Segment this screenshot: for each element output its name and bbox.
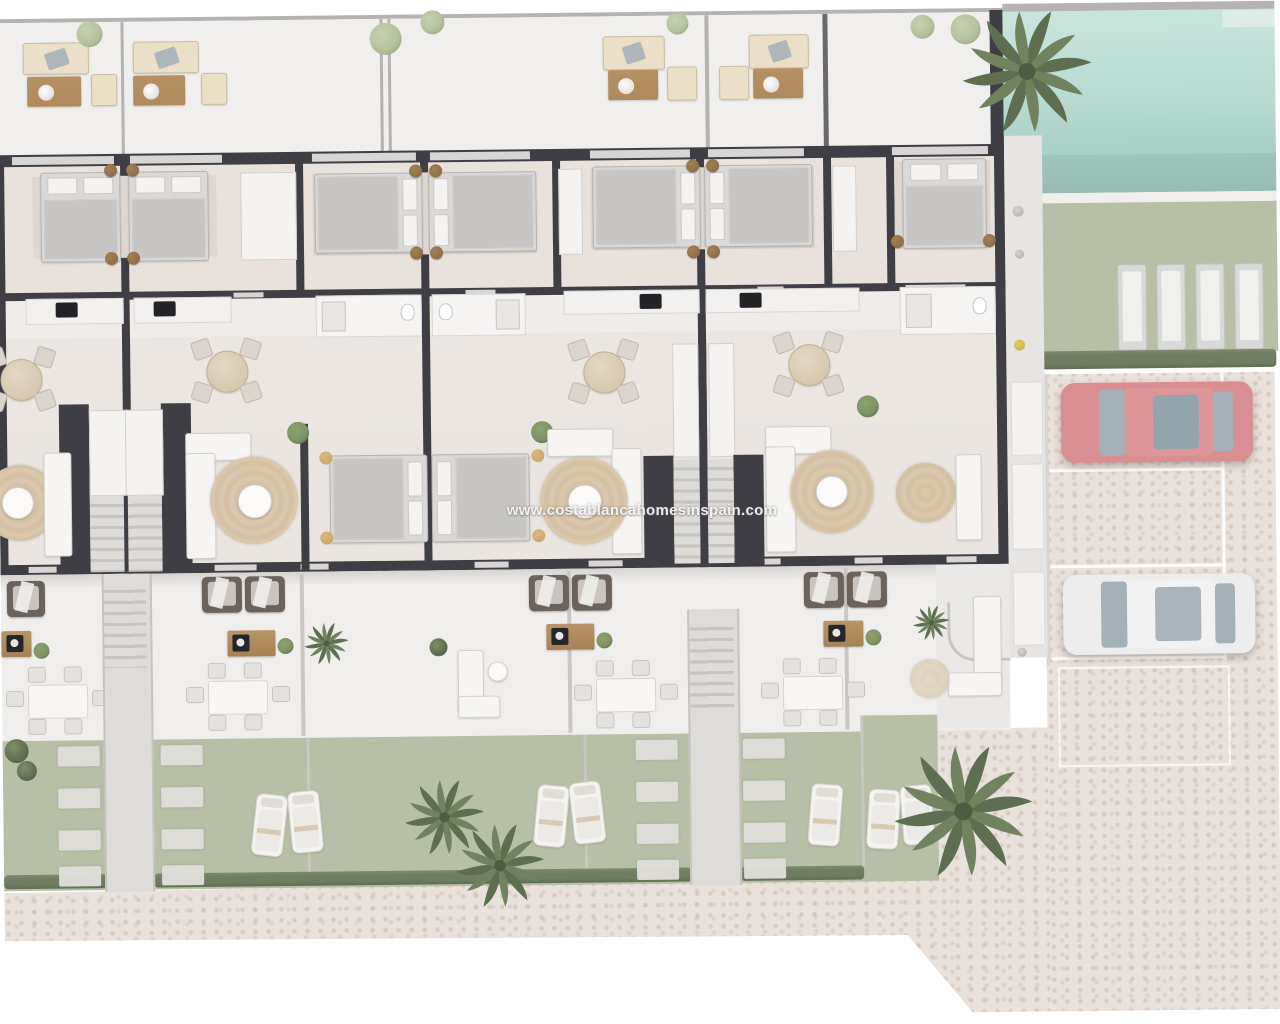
sun-lounger <box>250 793 289 858</box>
round-pouf <box>706 159 719 172</box>
car-windshield <box>1101 581 1128 647</box>
bush <box>420 10 444 34</box>
stepping-stone <box>59 830 101 850</box>
outdoor-sofa <box>603 36 665 71</box>
window <box>430 151 530 160</box>
outdoor-dining-set <box>759 655 868 726</box>
living-wall <box>300 424 310 572</box>
plant-pot <box>1015 250 1024 259</box>
window <box>130 155 222 164</box>
sofa <box>547 428 613 457</box>
outdoor-sofa <box>23 42 89 75</box>
double-bed <box>902 158 987 249</box>
path-steps <box>104 582 147 668</box>
terrace-armchair <box>847 571 887 607</box>
bathroom <box>316 294 422 337</box>
hall-closet <box>89 410 128 496</box>
potted-plant <box>857 395 879 417</box>
terrace-door <box>589 560 623 566</box>
shower <box>496 299 520 329</box>
shrub <box>17 761 37 781</box>
outdoor-armchair <box>667 66 697 100</box>
kitchen-counter <box>134 297 232 324</box>
terrace-armchair <box>804 572 844 608</box>
outdoor-rug <box>910 658 950 698</box>
hall-closet <box>125 409 164 495</box>
outdoor-armchair <box>91 74 117 106</box>
round-pouf <box>429 164 442 177</box>
cooktop <box>740 293 762 308</box>
bush <box>76 21 102 47</box>
pool-deep-shading <box>1004 153 1276 194</box>
double-bed <box>431 453 530 542</box>
sun-lounger <box>807 783 844 847</box>
round-pouf <box>983 234 996 247</box>
white-car <box>1063 573 1256 655</box>
round-pouf <box>409 164 422 177</box>
bbq-console <box>546 624 594 651</box>
dining-set <box>0 343 57 416</box>
cooktop <box>640 294 662 309</box>
potted-plant <box>287 422 309 444</box>
round-pouf <box>319 451 332 464</box>
sunbed <box>1156 264 1186 350</box>
double-bed <box>704 164 813 247</box>
palm-tree <box>888 736 1040 888</box>
stair-core <box>59 403 193 574</box>
stepping-stone <box>59 866 101 886</box>
outdoor-armchair <box>201 73 227 105</box>
round-pouf <box>686 159 699 172</box>
toilet <box>439 303 453 320</box>
fan-palm-plant <box>302 619 351 668</box>
palm-tree <box>451 817 548 914</box>
car-sunroof <box>1155 587 1202 642</box>
potted-plant <box>33 643 49 659</box>
stepping-stone <box>161 787 203 807</box>
kitchen-counter <box>705 287 859 313</box>
entry-mat <box>1011 463 1044 549</box>
stepping-stone <box>636 782 678 802</box>
dining-set <box>772 328 845 401</box>
double-bed <box>314 172 423 253</box>
round-pouf <box>105 252 118 265</box>
bbq-console <box>1 631 31 657</box>
bbq-console <box>823 620 863 646</box>
palm-tree <box>956 1 1098 143</box>
outdoor-dining-set <box>4 664 113 735</box>
stepping-stone <box>637 860 679 880</box>
stepping-stone <box>58 746 100 766</box>
outdoor-coffee-table <box>27 76 81 107</box>
garden-lawn <box>860 715 937 736</box>
bathroom <box>432 293 526 336</box>
terrace-armchair <box>202 577 242 613</box>
window <box>708 148 804 157</box>
stepping-stone <box>161 745 203 765</box>
door-opening <box>233 292 263 297</box>
terrace-armchair <box>245 576 285 612</box>
hall-closet <box>672 343 699 457</box>
stepping-stone <box>162 829 204 849</box>
outdoor-coffee-table <box>608 70 658 101</box>
hall-closet <box>708 343 735 457</box>
terrace-armchair <box>572 574 612 610</box>
double-bed <box>329 454 428 543</box>
stepping-stone <box>162 865 204 885</box>
outdoor-coffee-table <box>753 68 803 99</box>
bbq-console <box>227 630 275 657</box>
round-pouf <box>410 246 423 259</box>
stepping-stone <box>58 788 100 808</box>
sofa <box>955 454 982 540</box>
stair-core <box>642 339 765 568</box>
potted-plant <box>865 629 881 645</box>
terrace-armchair <box>529 575 569 611</box>
wardrobe <box>558 169 583 255</box>
outdoor-dining-set <box>184 660 293 731</box>
coffee-table <box>2 487 34 519</box>
round-pouf <box>891 235 904 248</box>
stepping-stone <box>637 824 679 844</box>
bathroom <box>899 286 996 335</box>
potted-plant <box>596 632 612 648</box>
terrace-door <box>29 567 57 573</box>
terrace-door <box>947 556 977 562</box>
bush <box>369 23 401 55</box>
car-rear-window <box>1213 391 1234 451</box>
round-pouf <box>320 531 333 544</box>
parking-hedge <box>1024 349 1276 370</box>
round-rug <box>895 462 956 523</box>
sunbed <box>1234 263 1264 349</box>
wardrobe <box>832 166 857 252</box>
window <box>892 146 988 155</box>
terrace-door <box>855 557 883 563</box>
cooktop <box>154 301 176 316</box>
sunbed <box>1117 264 1147 350</box>
round-pouf <box>532 529 545 542</box>
stepping-stone <box>636 740 678 760</box>
stepping-stone <box>743 738 785 758</box>
stepping-stone <box>743 780 785 800</box>
outdoor-sofa <box>749 34 809 69</box>
round-pouf <box>687 245 700 258</box>
shower <box>906 294 932 328</box>
yellow-pot <box>1014 340 1025 351</box>
outdoor-sofa <box>133 41 199 74</box>
shower <box>322 301 346 331</box>
double-bed <box>40 172 121 263</box>
round-pouf <box>127 252 140 265</box>
double-bed <box>428 171 537 252</box>
plant-pot <box>1018 648 1027 657</box>
bush <box>666 12 688 34</box>
shrub <box>429 638 447 656</box>
coffee-table <box>816 476 848 508</box>
dining-set <box>190 334 263 407</box>
double-bed <box>128 171 209 262</box>
sun-lounger <box>287 789 325 854</box>
side-table <box>488 662 508 682</box>
fan-palm-plant <box>911 602 951 642</box>
round-pouf <box>531 449 544 462</box>
entry-mat <box>1013 571 1046 645</box>
kitchen-counter <box>563 289 699 315</box>
potted-plant <box>277 638 293 654</box>
double-bed <box>592 165 701 248</box>
stepping-stone <box>744 858 786 878</box>
corner-outdoor-sofa <box>458 696 500 718</box>
window <box>12 156 114 165</box>
sunbed <box>1195 263 1225 349</box>
cooktop <box>56 302 78 317</box>
sofa <box>43 452 72 556</box>
watermark-text: www.costablancahomesinspain.com <box>492 502 792 519</box>
terrace-door <box>215 564 257 570</box>
corner-outdoor-sofa <box>948 672 1002 697</box>
stepping-stone <box>744 822 786 842</box>
round-pouf <box>430 246 443 259</box>
car-rear-window <box>1215 583 1236 643</box>
wardrobe <box>240 172 297 261</box>
coffee-table <box>238 484 272 518</box>
round-pouf <box>126 164 139 177</box>
path-steps <box>689 619 734 711</box>
terrace-door <box>475 561 509 567</box>
round-pouf <box>707 245 720 258</box>
dining-set <box>567 335 640 408</box>
bedroom-wall <box>823 156 833 290</box>
window <box>312 153 416 162</box>
red-car <box>1061 381 1254 463</box>
outdoor-coffee-table <box>133 75 185 106</box>
terrace-armchair <box>7 581 45 617</box>
round-pouf <box>104 164 117 177</box>
bush <box>910 15 934 39</box>
pool-step <box>1222 10 1274 28</box>
toilet <box>401 304 415 321</box>
toilet <box>973 297 987 314</box>
parking-stall-outline <box>1058 665 1231 767</box>
shrub <box>5 739 29 763</box>
car-sunroof <box>1153 395 1200 450</box>
plant-pot <box>1013 206 1024 217</box>
entry-mat <box>1011 381 1044 455</box>
window <box>590 149 690 158</box>
floorplan-image: www.costablancahomesinspain.com <box>0 0 1280 1024</box>
outdoor-dining-set <box>572 658 681 729</box>
outdoor-armchair <box>719 66 749 100</box>
car-windshield <box>1099 389 1126 455</box>
